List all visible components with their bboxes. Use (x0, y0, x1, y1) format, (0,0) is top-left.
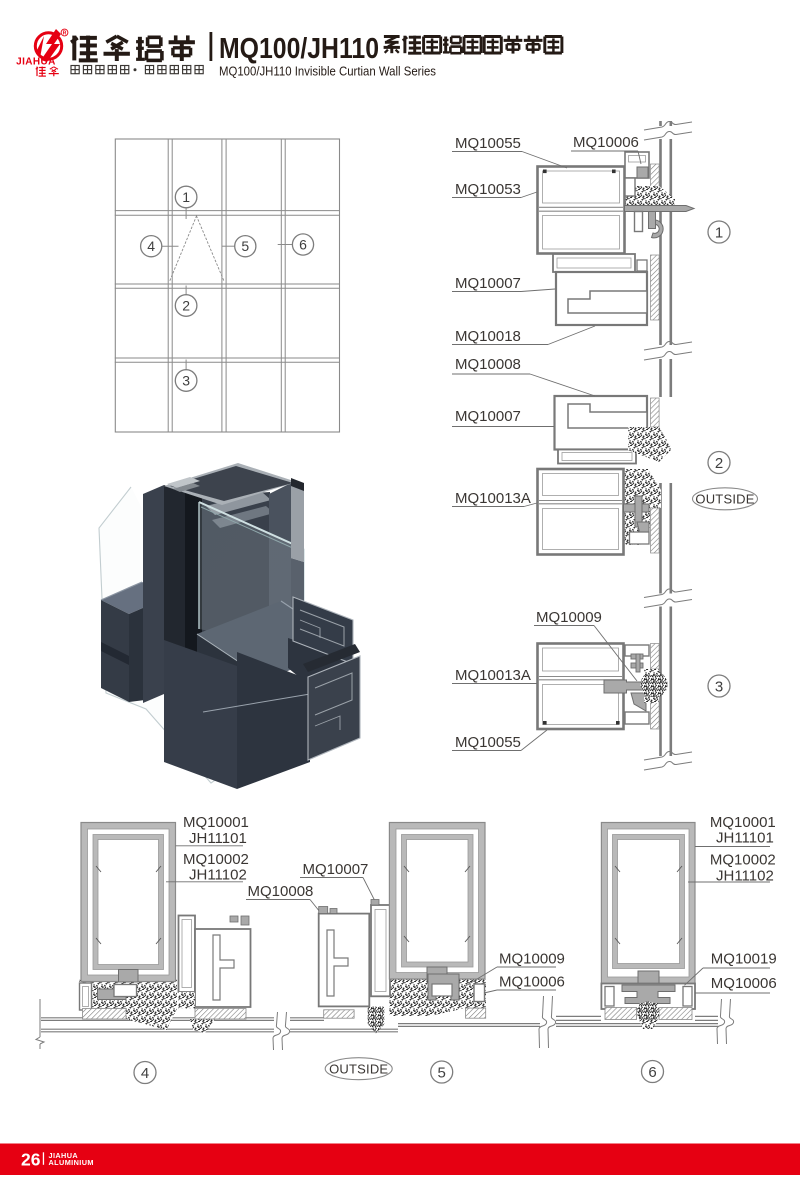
svg-text:2: 2 (715, 455, 723, 472)
svg-text:3: 3 (715, 678, 723, 695)
svg-text:1: 1 (715, 224, 723, 241)
svg-text:4: 4 (147, 238, 155, 254)
svg-text:5: 5 (241, 238, 249, 254)
svg-text:MQ100/JH110 Invisible Curtia: MQ100/JH110 Invisible Curtian Wall Serie… (219, 65, 436, 79)
svg-text:1: 1 (182, 189, 190, 205)
svg-text:2: 2 (182, 298, 190, 314)
svg-text:MQ10055: MQ10055 (455, 734, 521, 751)
svg-text:MQ10007: MQ10007 (455, 408, 521, 425)
svg-text:MQ10013A: MQ10013A (455, 490, 531, 507)
svg-text:MQ10008: MQ10008 (248, 883, 314, 900)
svg-text:MQ10019: MQ10019 (711, 950, 777, 967)
svg-text:MQ10001: MQ10001 (183, 814, 249, 831)
svg-text:6: 6 (299, 237, 307, 253)
svg-text:26: 26 (21, 1149, 41, 1169)
svg-text:MQ100/JH110: MQ100/JH110 (219, 33, 379, 65)
svg-text:MQ10006: MQ10006 (499, 974, 565, 991)
svg-text:JH11101: JH11101 (716, 830, 774, 847)
svg-text:MQ10007: MQ10007 (303, 861, 369, 878)
svg-text:MQ10007: MQ10007 (455, 275, 521, 292)
svg-text:4: 4 (141, 1065, 149, 1082)
svg-text:JH11101: JH11101 (189, 830, 247, 847)
svg-text:R: R (63, 31, 67, 37)
svg-text:JH11102: JH11102 (189, 867, 247, 884)
svg-text:OUTSIDE: OUTSIDE (329, 1061, 388, 1076)
svg-text:MQ10006: MQ10006 (711, 975, 777, 992)
svg-text:MQ10002: MQ10002 (710, 852, 776, 869)
svg-text:3: 3 (182, 373, 190, 389)
svg-text:JIAHUA: JIAHUA (16, 57, 56, 68)
svg-text:MQ10009: MQ10009 (499, 951, 565, 968)
svg-text:OUTSIDE: OUTSIDE (695, 492, 754, 507)
svg-text:MQ10009: MQ10009 (536, 609, 602, 626)
svg-text:MQ10055: MQ10055 (455, 135, 521, 152)
svg-text:MQ10018: MQ10018 (455, 328, 521, 345)
svg-text:MQ10053: MQ10053 (455, 181, 521, 198)
svg-text:MQ10013A: MQ10013A (455, 667, 531, 684)
svg-text:MQ10006: MQ10006 (573, 134, 639, 151)
svg-text:MQ10002: MQ10002 (183, 851, 249, 868)
svg-text:MQ10008: MQ10008 (455, 356, 521, 373)
svg-text:6: 6 (648, 1064, 656, 1081)
svg-text:5: 5 (438, 1064, 446, 1081)
svg-text:ALUMINIUM: ALUMINIUM (49, 1158, 94, 1167)
svg-text:MQ10001: MQ10001 (710, 814, 776, 831)
